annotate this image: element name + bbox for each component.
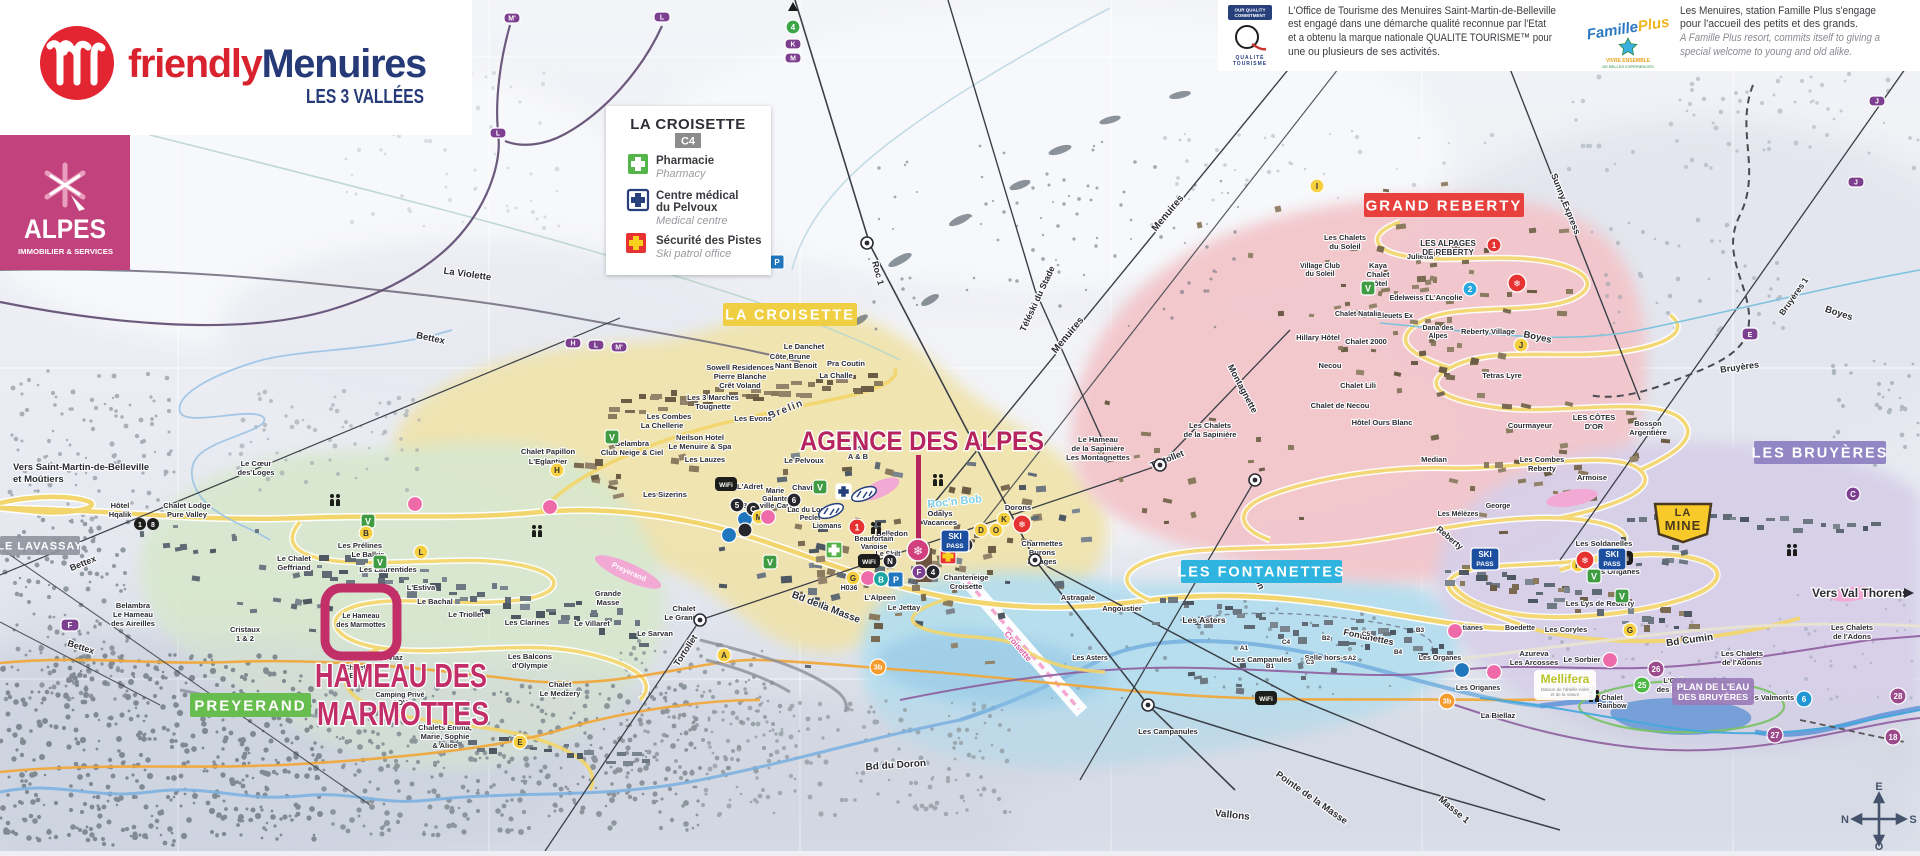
svg-text:Chalet Papillon: Chalet Papillon [521,447,576,456]
svg-text:OUR QUALITY: OUR QUALITY [1235,8,1266,13]
svg-text:Les Combes: Les Combes [647,412,692,421]
svg-text:et Moûtiers: et Moûtiers [13,474,64,485]
svg-text:des Marmottes: des Marmottes [336,622,386,629]
svg-text:A Famille Plus resort, commits: A Famille Plus resort, commits itself to… [1679,32,1880,44]
svg-text:I: I [1316,182,1318,191]
svg-text:SKI: SKI [1478,550,1491,559]
svg-text:Les Balcons: Les Balcons [508,652,552,661]
svg-text:Pharmacie: Pharmacie [656,155,714,167]
svg-text:C5: C5 [1362,631,1371,638]
svg-text:Astragale: Astragale [1061,593,1095,602]
svg-text:Galante: Galante [762,496,788,503]
svg-text:1: 1 [854,523,859,533]
svg-text:Chalet Lodge: Chalet Lodge [163,501,211,510]
svg-text:Chalet: Chalet [673,604,696,613]
svg-text:WiFi: WiFi [862,559,876,566]
svg-text:H036: H036 [841,585,858,592]
svg-text:Marie, Sophie: Marie, Sophie [421,732,470,741]
svg-text:L'Adret: L'Adret [737,482,763,491]
svg-text:❄: ❄ [1018,520,1026,530]
svg-text:Les Mélèzes: Les Mélèzes [1438,511,1479,518]
svg-text:E: E [1875,781,1882,793]
svg-text:Chalet Lili: Chalet Lili [1340,381,1376,390]
svg-text:Les Evons: Les Evons [734,414,772,423]
svg-text:Le Pelvoux: Le Pelvoux [784,456,824,465]
svg-text:Les Organes: Les Organes [1419,655,1462,662]
svg-text:Les Asters: Les Asters [1072,655,1108,662]
svg-text:P: P [774,258,780,267]
svg-text:C4: C4 [681,136,696,148]
svg-text:J: J [1875,99,1879,106]
svg-text:5: 5 [735,501,740,510]
svg-text:Les Coryles: Les Coryles [1545,625,1588,634]
svg-text:Sécurité des Pistes: Sécurité des Pistes [656,235,761,247]
svg-text:H: H [554,466,560,475]
svg-text:Reberty Village: Reberty Village [1461,327,1515,336]
svg-text:Les 3 Marches: Les 3 Marches [687,393,739,402]
svg-text:L: L [496,131,501,138]
svg-text:Les Asters: Les Asters [1182,615,1225,625]
svg-text:V: V [817,483,823,493]
svg-text:L'Ancolie: L'Ancolie [1429,293,1462,302]
svg-text:6: 6 [1802,695,1807,704]
svg-text:25: 25 [1638,681,1647,690]
svg-text:P: P [893,575,899,585]
svg-text:Marie: Marie [766,488,784,495]
svg-text:LES BRUYÈRES: LES BRUYÈRES [1752,445,1889,462]
svg-text:Les Campanules: Les Campanules [1138,727,1198,736]
svg-text:PASS: PASS [1476,561,1494,568]
svg-text:Les Soldanelles: Les Soldanelles [1576,539,1633,548]
svg-text:MARMOTTES: MARMOTTES [317,695,489,732]
svg-text:N: N [887,557,893,566]
svg-text:Ski patrol office: Ski patrol office [656,248,731,260]
svg-text:Le Hameau: Le Hameau [113,610,153,619]
svg-text:B2: B2 [1322,635,1331,642]
svg-text:La Chellerie: La Chellerie [641,421,684,430]
svg-text:Belambra: Belambra [116,601,151,610]
svg-text:Les Menuires, station Famille: Les Menuires, station Famille Plus s'eng… [1680,5,1876,17]
svg-text:Bosson: Bosson [1634,419,1662,428]
svg-text:Les Chalets: Les Chalets [1324,233,1366,242]
svg-text:Necou: Necou [1319,361,1342,370]
svg-text:Chalet de Necou: Chalet de Necou [1311,401,1370,410]
svg-text:de l'Adonis: de l'Adonis [1722,658,1762,667]
svg-text:M': M' [508,16,516,23]
svg-text:Cristaux: Cristaux [230,625,261,634]
svg-text:Le Cœur: Le Cœur [241,459,272,468]
svg-text:18: 18 [1889,733,1898,742]
svg-text:PREYERAND: PREYERAND [194,697,306,714]
svg-text:❄: ❄ [1513,279,1521,289]
svg-text:Argentière: Argentière [1629,428,1667,437]
svg-text:M': M' [615,345,623,352]
svg-text:Crêt Voland: Crêt Voland [719,381,761,390]
svg-text:Village Club: Village Club [1300,263,1340,270]
svg-text:Rainbow: Rainbow [1597,703,1627,710]
svg-text:ALPES: ALPES [24,214,106,244]
svg-text:LES FONTANETTES: LES FONTANETTES [1177,565,1345,581]
svg-text:L'Office de Tourisme des Menui: L'Office de Tourisme des Menuires Saint-… [1288,5,1556,17]
svg-text:du Soleil: du Soleil [1305,271,1334,278]
svg-text:Les Clarines: Les Clarines [505,618,550,627]
svg-text:Les Montagnettes: Les Montagnettes [1066,453,1130,462]
svg-text:Les Combes: Les Combes [1520,455,1565,464]
svg-text:Les Laurentides: Les Laurentides [359,565,417,574]
svg-text:Alpes: Alpes [1428,333,1447,340]
svg-text:V: V [767,558,773,568]
svg-text:Edelweiss D: Edelweiss D [1390,295,1431,302]
svg-text:George: George [1486,503,1511,510]
svg-text:E: E [517,738,523,747]
svg-text:Les Origanes: Les Origanes [1456,685,1500,692]
svg-text:& Alice: & Alice [432,741,457,750]
svg-text:Mellifera: Mellifera [1541,672,1590,686]
svg-text:D'OR: D'OR [1585,422,1604,431]
svg-text:1: 1 [1492,241,1497,250]
svg-text:une ou plusieurs de ses activi: une ou plusieurs de ses activités. [1288,46,1440,58]
svg-text:27: 27 [1771,731,1780,740]
svg-text:SKI: SKI [948,532,961,541]
svg-text:Vers Saint-Martin-de-Bellevill: Vers Saint-Martin-de-Belleville [13,462,149,473]
svg-text:Le Chalet: Le Chalet [277,554,311,563]
svg-text:E: E [1748,332,1753,339]
svg-text:A: A [721,651,727,660]
svg-text:Hôtel Ours Blanc: Hôtel Ours Blanc [1352,418,1413,427]
svg-text:Tougnette: Tougnette [695,402,731,411]
svg-text:est engagé dans une démarche q: est engagé dans une démarche qualité rec… [1288,18,1546,30]
svg-text:Pure Valley: Pure Valley [167,510,208,519]
svg-text:IMMOBILIER & SERVICES: IMMOBILIER & SERVICES [18,247,113,256]
svg-text:D: D [978,526,984,535]
svg-text:des Aireilles: des Aireilles [111,619,155,628]
svg-text:DE REBERTY: DE REBERTY [1422,248,1474,257]
svg-text:G: G [1627,626,1633,635]
svg-text:V: V [1591,572,1597,582]
svg-text:Armoise: Armoise [1577,473,1607,482]
svg-text:special welcome to young and o: special welcome to young and old alike. [1680,46,1852,58]
svg-text:de la Sapinière: de la Sapinière [1072,444,1125,453]
svg-text:PASS: PASS [1603,561,1621,568]
svg-text:Boedette: Boedette [1505,625,1535,632]
svg-text:Azureva: Azureva [1519,649,1549,658]
svg-text:Reberty: Reberty [1528,464,1557,473]
svg-text:Centre médical: Centre médical [656,190,738,202]
svg-text:MINE: MINE [1665,518,1702,533]
svg-text:Chalet Natalia: Chalet Natalia [1335,311,1381,318]
svg-text:Tetras Lyre: Tetras Lyre [1482,371,1522,380]
svg-text:8: 8 [151,522,155,529]
svg-text:❄: ❄ [913,544,923,558]
svg-text:O: O [993,526,999,535]
svg-text:Hqalik: Hqalik [109,510,132,519]
svg-text:K: K [790,42,795,49]
svg-text:des Loges: des Loges [237,468,274,477]
svg-text:pour l'accueil des petits et d: pour l'accueil des petits et des grands. [1680,18,1858,30]
svg-text:LES 3 VALLÉES: LES 3 VALLÉES [306,85,424,108]
svg-text:L: L [419,548,424,557]
svg-text:TOURISME: TOURISME [1233,61,1267,67]
svg-text:Pharmacy: Pharmacy [656,168,707,180]
svg-text:AGENCE DES ALPES: AGENCE DES ALPES [800,426,1044,456]
svg-text:Vanoise: Vanoise [861,544,888,551]
svg-text:N: N [1841,814,1849,826]
svg-text:WiFi: WiFi [1259,696,1273,703]
svg-text:3b: 3b [1443,697,1452,706]
svg-text:B: B [363,529,369,538]
svg-text:du Soleil: du Soleil [1329,242,1360,251]
svg-text:DES BRUYÈRES: DES BRUYÈRES [1678,692,1748,702]
svg-text:LE LAVASSAY: LE LAVASSAY [0,540,83,552]
svg-text:❄: ❄ [1581,556,1589,566]
svg-text:friendlyMenuires: friendlyMenuires [128,42,426,86]
svg-text:L'Estiva: L'Estiva [407,583,436,592]
svg-text:Median: Median [1421,455,1447,464]
svg-text:Geffriand: Geffriand [277,563,311,572]
svg-text:Le Sarvan: Le Sarvan [637,629,673,638]
svg-text:LES ALPAGES: LES ALPAGES [1420,239,1476,248]
svg-text:Croisette: Croisette [950,582,983,591]
svg-text:Nant Benoit: Nant Benoit [775,361,818,370]
svg-text:Dorons: Dorons [1005,503,1031,512]
svg-text:du Pelvoux: du Pelvoux [656,202,718,214]
svg-text:C4: C4 [1282,639,1291,646]
svg-text:HAMEAU DES: HAMEAU DES [315,657,487,694]
svg-text:A2: A2 [1348,655,1357,662]
svg-text:B1: B1 [1266,663,1275,670]
svg-text:L'Alpeen: L'Alpeen [864,593,896,602]
svg-text:Chalet 2000: Chalet 2000 [1345,337,1387,346]
svg-text:B3: B3 [1416,627,1425,634]
svg-text:Charmettes: Charmettes [1021,539,1062,548]
svg-text:Chalet: Chalet [1601,695,1623,702]
svg-text:Bleuets Ex: Bleuets Ex [1377,313,1413,320]
svg-text:Les Chalets: Les Chalets [1189,421,1231,430]
svg-text:6: 6 [792,496,797,505]
svg-text:J: J [1854,180,1858,187]
svg-text:Medical centre: Medical centre [656,215,728,227]
svg-text:B: B [878,576,884,585]
svg-text:Les Sizerins: Les Sizerins [643,490,687,499]
svg-text:Angoustier: Angoustier [1102,604,1142,613]
svg-text:V: V [1365,284,1371,294]
svg-text:LA CROISETTE: LA CROISETTE [725,308,855,324]
svg-text:G: G [850,574,856,583]
svg-text:S: S [1909,814,1916,826]
svg-text:1: 1 [138,522,142,529]
svg-text:et a obtenu la marque national: et a obtenu la marque nationale QUALITE … [1288,32,1552,44]
svg-text:L: L [594,343,599,350]
svg-text:C: C [1850,490,1856,499]
svg-text:COMMITMENT: COMMITMENT [1235,13,1266,18]
svg-text:Les Prélines: Les Prélines [338,541,382,550]
svg-text:C3: C3 [1306,659,1315,666]
svg-text:Vacances: Vacances [923,518,957,527]
svg-text:26: 26 [1652,665,1661,674]
svg-text:Sowell Residences: Sowell Residences [706,363,774,372]
svg-text:M: M [790,56,796,63]
svg-text:V: V [1619,592,1625,602]
svg-text:V: V [377,558,383,568]
svg-text:Chalet: Chalet [549,680,572,689]
svg-text:Chanteneige: Chanteneige [943,573,988,582]
svg-text:Le Menuire & Spa: Le Menuire & Spa [669,442,733,451]
svg-text:Le Hameau: Le Hameau [1078,435,1118,444]
svg-text:K: K [1001,515,1007,524]
svg-text:J: J [1519,341,1523,350]
svg-text:d'Olympie: d'Olympie [512,661,548,670]
svg-text:Dana des: Dana des [1422,325,1453,332]
svg-text:Beaufortain: Beaufortain [855,536,894,543]
svg-text:Le Hameau: Le Hameau [342,613,379,620]
svg-text:Belambra: Belambra [615,439,650,448]
svg-text:Neilson Hotel: Neilson Hotel [676,433,724,442]
svg-text:Grande: Grande [595,589,621,598]
svg-text:4: 4 [931,568,936,577]
svg-text:Les Campanules: Les Campanules [1232,655,1292,664]
svg-text:Côte Brune: Côte Brune [770,352,810,361]
svg-text:La Challe: La Challe [819,371,852,380]
svg-text:F: F [68,621,73,630]
svg-text:SKI: SKI [1605,550,1618,559]
svg-text:4: 4 [791,23,796,32]
svg-text:et de la nature: et de la nature [1551,692,1580,697]
svg-text:H: H [570,341,575,348]
svg-text:Kaya: Kaya [1369,261,1388,270]
svg-text:1 & 2: 1 & 2 [236,634,254,643]
svg-text:Chalet: Chalet [1367,270,1390,279]
svg-text:PASS: PASS [946,543,964,550]
svg-text:Les Chalets: Les Chalets [1721,649,1763,658]
svg-text:Courmayeur: Courmayeur [1508,421,1552,430]
svg-text:Club Neige & Ciel: Club Neige & Ciel [601,448,664,457]
svg-text:Les Lauzes: Les Lauzes [685,455,725,464]
svg-text:Le Jettay: Le Jettay [888,603,921,612]
svg-text:O: O [1875,841,1884,851]
svg-text:V: V [609,433,615,443]
svg-text:LES CÔTES: LES CÔTES [1573,413,1616,422]
svg-text:2: 2 [1468,285,1473,294]
svg-text:A1: A1 [1240,645,1249,652]
svg-text:Le Medzery: Le Medzery [540,689,582,698]
svg-text:Hillary Hôtel: Hillary Hôtel [1296,333,1340,342]
svg-text:Le Bachal: Le Bachal [417,597,452,606]
svg-text:V: V [365,517,371,527]
svg-text:3b: 3b [874,663,883,672]
svg-text:Hôtel: Hôtel [111,501,130,510]
svg-text:de l'Adons: de l'Adons [1833,632,1871,641]
svg-text:WiFi: WiFi [719,482,733,489]
svg-text:Les Chalets: Les Chalets [1831,623,1873,632]
svg-text:La Biellaz: La Biellaz [1481,711,1516,720]
svg-text:Le Danchet: Le Danchet [784,342,825,351]
svg-text:de la Sapinière: de la Sapinière [1184,430,1237,439]
svg-text:Le Triollet: Le Triollet [448,610,484,619]
svg-text:L: L [660,15,665,22]
svg-text:GRAND REBERTY: GRAND REBERTY [1366,197,1523,214]
svg-text:QUALITÉ: QUALITÉ [1236,53,1265,61]
svg-text:Peclet: Peclet [800,515,821,522]
svg-text:Les Arcosses: Les Arcosses [1510,658,1559,667]
svg-text:LA CROISETTE: LA CROISETTE [630,116,745,133]
svg-text:Pra Coutin: Pra Coutin [827,359,865,368]
svg-text:B4: B4 [1394,649,1403,656]
svg-text:Pierre Blanche: Pierre Blanche [714,372,767,381]
svg-text:Le Villaret: Le Villaret [574,619,610,628]
svg-text:Le Sorbier: Le Sorbier [1563,655,1600,664]
svg-text:Masse: Masse [597,598,620,607]
svg-text:F: F [917,568,922,577]
svg-text:Vers Val Thorens: Vers Val Thorens [1812,586,1909,600]
svg-text:28: 28 [1894,692,1903,701]
svg-text:DE BELLES EXPÉRIENCES: DE BELLES EXPÉRIENCES [1602,64,1654,69]
svg-text:Liomans: Liomans [813,523,842,530]
